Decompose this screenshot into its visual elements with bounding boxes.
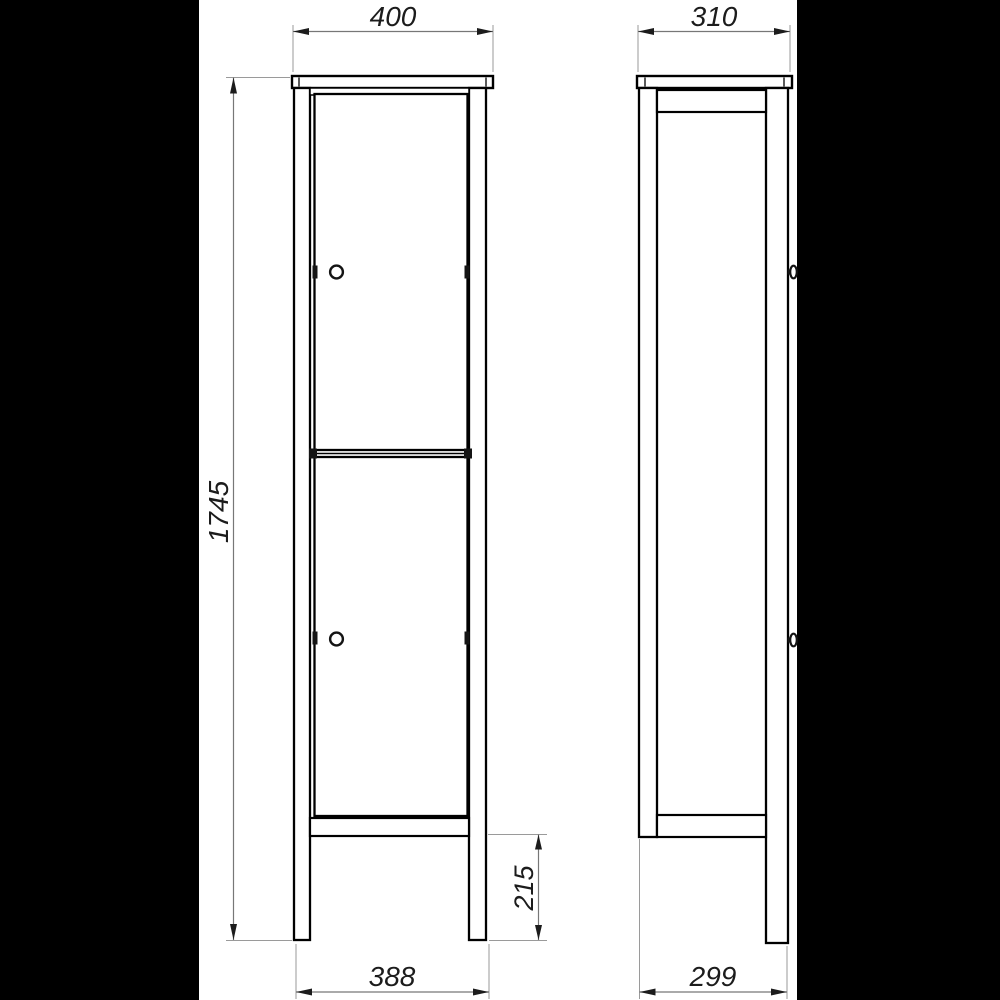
side-upper-knob xyxy=(790,266,797,279)
upper-door-right-hinge-mark xyxy=(465,266,470,279)
front-view xyxy=(292,76,493,940)
lower-door-knob xyxy=(330,633,343,646)
side-top-rail xyxy=(657,90,766,112)
lower-door-right-hinge-mark xyxy=(465,632,470,645)
dim-label-front-leg-height: 215 xyxy=(509,864,539,911)
front-bottom-rail xyxy=(310,818,469,836)
divider-right-nub xyxy=(464,449,472,459)
divider-left-nub xyxy=(309,449,317,459)
technical-drawing-page: 400 1745 215 388 xyxy=(0,0,1000,1000)
side-back-leg xyxy=(639,88,657,837)
side-front-leg xyxy=(766,88,788,943)
front-top-slab xyxy=(292,76,493,88)
dim-label-front-overall-height: 1745 xyxy=(203,480,234,543)
dim-label-side-top-depth: 310 xyxy=(691,1,738,32)
side-bottom-rail xyxy=(657,815,766,837)
upper-door-knob xyxy=(330,266,343,279)
upper-door-left-hinge-mark xyxy=(313,266,318,279)
front-left-leg xyxy=(294,88,310,940)
drawing-paper xyxy=(199,0,797,1000)
lower-door-left-hinge-mark xyxy=(313,632,318,645)
side-lower-knob xyxy=(790,634,797,647)
front-right-leg xyxy=(469,88,486,940)
side-top-slab xyxy=(637,76,792,88)
dim-label-front-top-width: 400 xyxy=(370,1,417,32)
dim-label-side-bottom-depth: 299 xyxy=(689,961,737,992)
technical-drawing-canvas: 400 1745 215 388 xyxy=(0,0,1000,1000)
dim-label-front-bottom-width: 388 xyxy=(369,961,416,992)
